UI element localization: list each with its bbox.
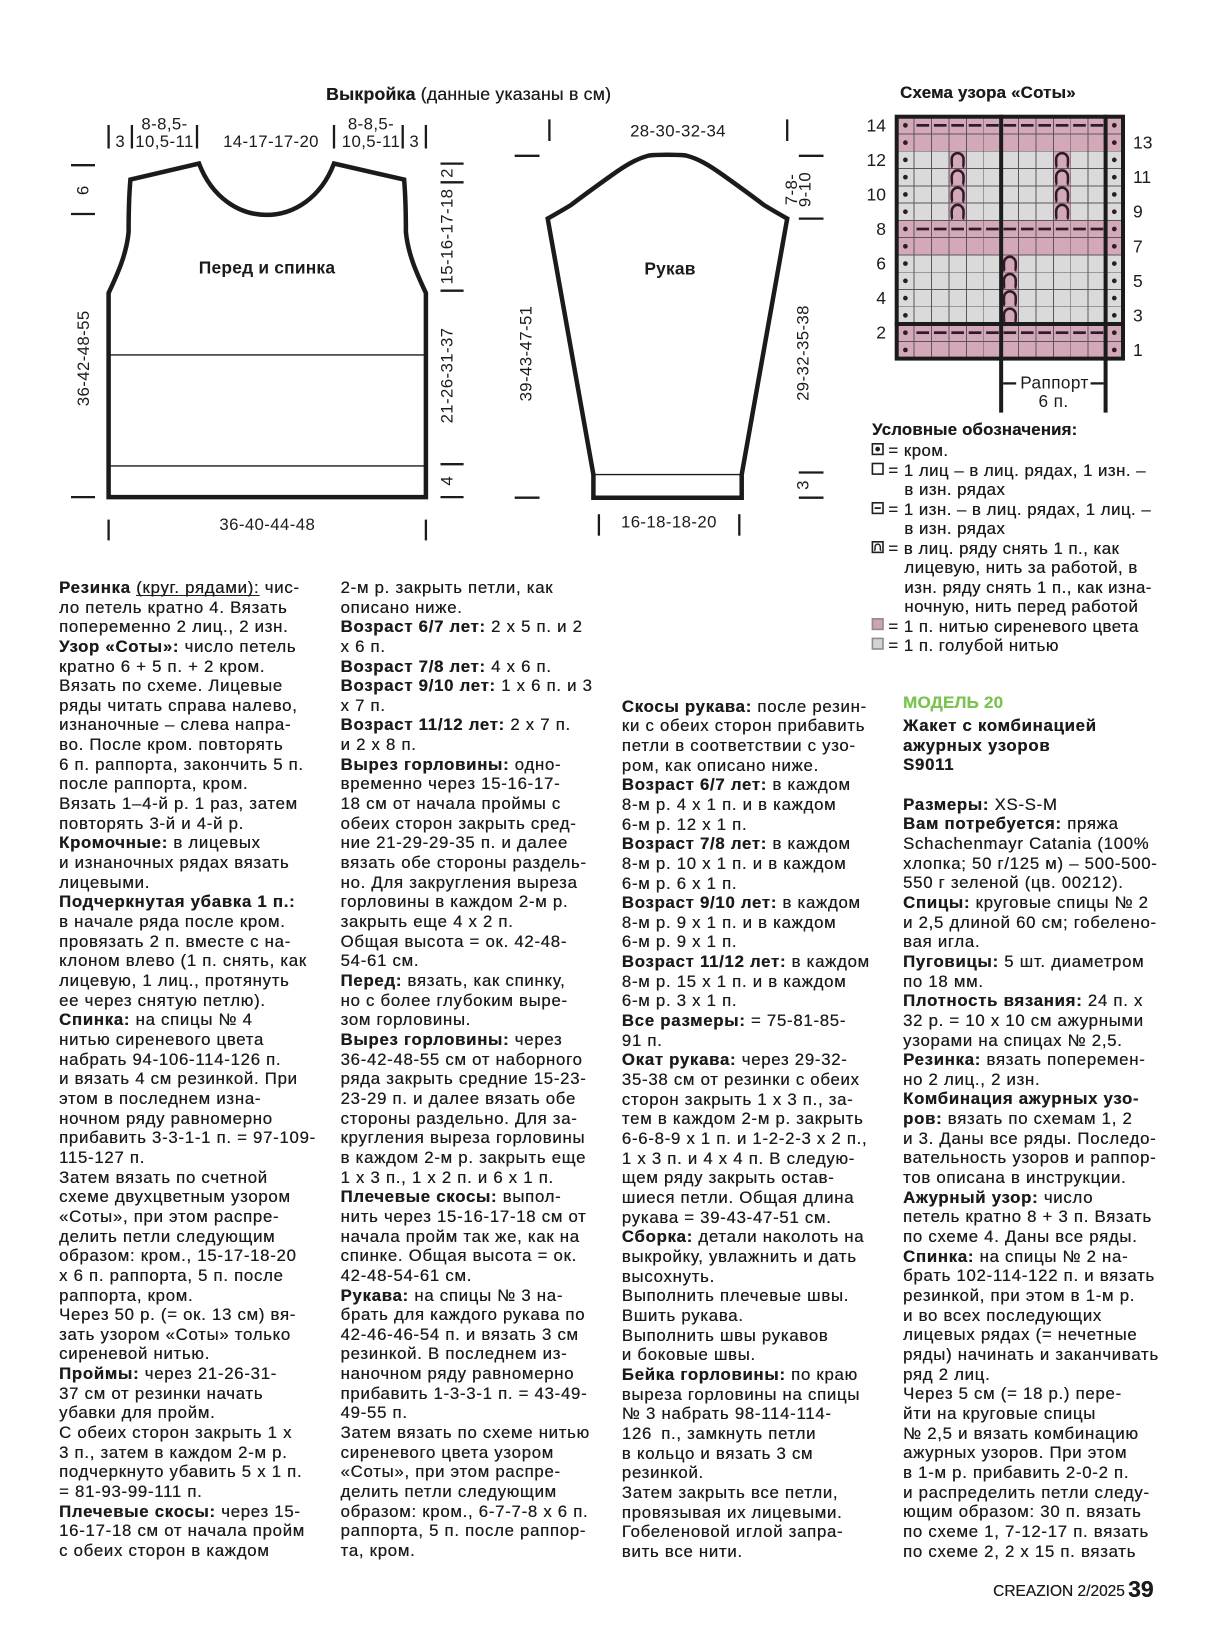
svg-text:5: 5 [1133,271,1143,291]
svg-text:9-10: 9-10 [796,172,815,207]
svg-text:14-17-17-20: 14-17-17-20 [223,132,319,151]
svg-text:10,5-11: 10,5-11 [342,132,400,151]
svg-text:15-16-17-18: 15-16-17-18 [438,189,457,285]
svg-text:Перед и спинка: Перед и спинка [199,257,336,277]
svg-text:Рукав: Рукав [644,259,695,279]
svg-text:4: 4 [438,476,457,486]
svg-text:2: 2 [438,168,457,178]
svg-text:6: 6 [876,254,886,274]
svg-text:11: 11 [1133,167,1151,187]
svg-text:28-30-32-34: 28-30-32-34 [630,122,726,141]
svg-text:9: 9 [1133,202,1143,222]
svg-text:3: 3 [115,132,125,151]
svg-text:12: 12 [867,150,886,170]
svg-text:3: 3 [794,480,813,490]
svg-text:36-40-44-48: 36-40-44-48 [219,515,315,534]
svg-text:8: 8 [876,219,886,239]
svg-text:16-18-18-20: 16-18-18-20 [621,512,717,531]
svg-text:36-42-48-55: 36-42-48-55 [74,310,93,406]
svg-text:3: 3 [409,132,419,151]
svg-text:4: 4 [876,288,886,308]
svg-text:14: 14 [867,115,887,135]
svg-text:21-26-31-37: 21-26-31-37 [438,328,457,424]
svg-text:8-8,5-: 8-8,5- [348,115,394,134]
svg-text:2: 2 [876,323,886,343]
svg-text:13: 13 [1133,133,1152,153]
svg-text:39-43-47-51: 39-43-47-51 [517,306,536,402]
svg-text:6: 6 [74,185,93,195]
svg-text:Раппорт: Раппорт [1020,372,1088,392]
svg-text:8-8,5-: 8-8,5- [141,115,187,134]
svg-text:3: 3 [1133,305,1143,325]
svg-text:6 п.: 6 п. [1038,391,1068,411]
svg-text:1: 1 [1133,340,1143,360]
svg-text:29-32-35-38: 29-32-35-38 [794,305,813,401]
svg-text:10,5-11: 10,5-11 [135,132,193,151]
svg-text:7: 7 [1133,236,1143,256]
svg-text:10: 10 [867,185,887,205]
